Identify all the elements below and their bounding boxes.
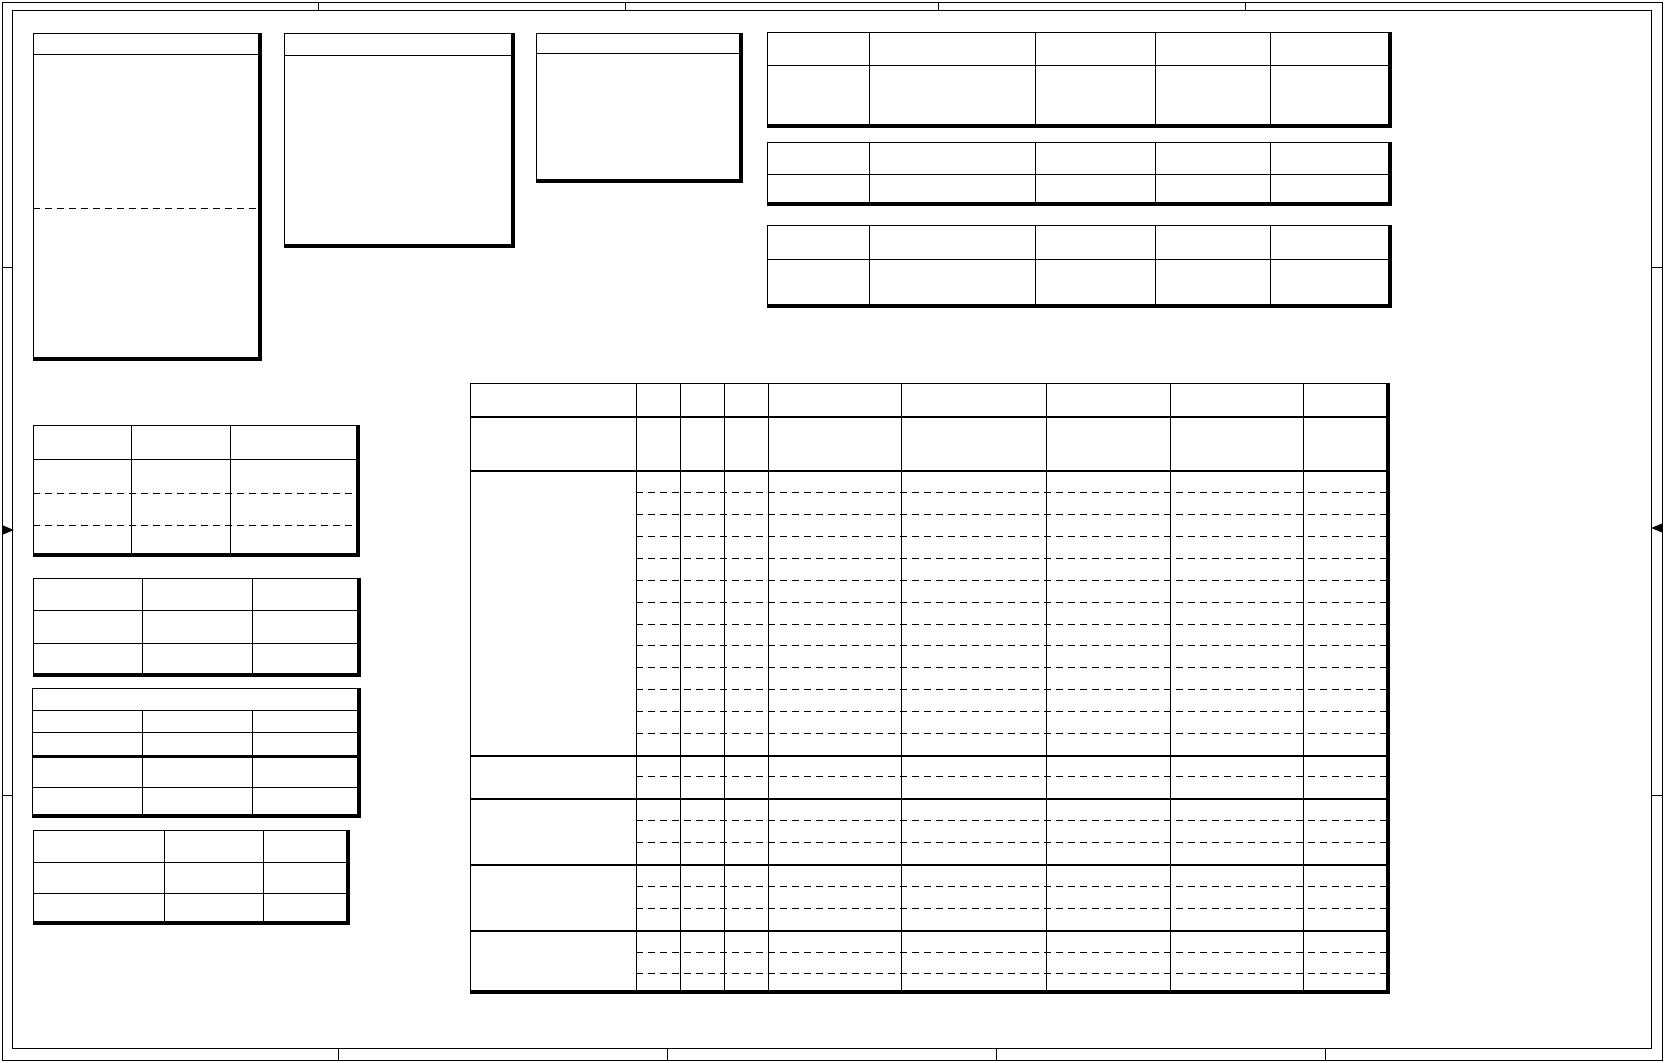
header-table-1-row-rule	[767, 65, 1389, 66]
main-schedule-table-dashed-row-rule	[636, 645, 1387, 646]
frame-zone-tick-top	[938, 2, 939, 10]
side-table-1-row-rule	[33, 459, 357, 460]
side-table-2-col-rule	[142, 578, 143, 674]
main-schedule-table-dashed-row-rule	[636, 667, 1387, 668]
side-table-2-col-rule	[252, 578, 253, 674]
main-schedule-table-dashed-row-rule	[636, 886, 1387, 887]
header-table-2-col-rule	[1270, 142, 1271, 203]
main-schedule-table-header-rule	[470, 416, 1387, 418]
main-schedule-table-col-rule	[724, 383, 725, 991]
header-table-1-col-rule	[1270, 32, 1271, 125]
header-table-3-col-rule	[869, 225, 870, 305]
header-table-3-row-rule	[767, 259, 1389, 260]
frame-zone-tick-bottom	[1325, 1049, 1326, 1061]
main-schedule-table-dashed-row-rule	[636, 580, 1387, 581]
side-table-2	[33, 578, 361, 677]
side-table-1-col-rule	[131, 425, 132, 554]
main-schedule-table-section-rule	[470, 864, 1387, 866]
note-box-2	[284, 33, 515, 248]
frame-zone-tick-left	[2, 795, 12, 796]
main-schedule-table-dashed-row-rule	[636, 776, 1387, 777]
main-schedule-table-dashed-row-rule	[636, 536, 1387, 537]
frame-zone-tick-right	[1652, 795, 1663, 796]
main-schedule-table-dashed-row-rule	[636, 908, 1387, 909]
main-schedule-table-dashed-row-rule	[636, 492, 1387, 493]
frame-zone-tick-top	[1245, 2, 1246, 10]
header-table-3-col-rule	[1155, 225, 1156, 305]
header-table-2-col-rule	[1155, 142, 1156, 203]
note-box-1	[33, 33, 262, 361]
side-table-1-row-rule	[33, 525, 357, 526]
side-table-1-col-rule	[230, 425, 231, 554]
header-table-2-col-rule	[869, 142, 870, 203]
side-table-3-row-rule	[32, 732, 358, 733]
frame-zone-tick-top	[625, 2, 626, 10]
frame-zone-tick-right	[1652, 267, 1663, 268]
header-table-1	[767, 32, 1392, 128]
main-schedule-table-col-rule	[1046, 383, 1047, 991]
side-table-1-row-rule	[33, 493, 357, 494]
side-table-3-row-rule	[32, 755, 358, 758]
main-schedule-table-section-rule	[470, 755, 1387, 757]
header-table-2-row-rule	[767, 174, 1389, 175]
header-table-1-col-rule	[1035, 32, 1036, 125]
note-box-1-header-rule	[33, 54, 259, 55]
frame-center-arrow-left	[2, 525, 14, 535]
main-schedule-table-col-rule	[901, 383, 902, 991]
frame-zone-tick-top	[318, 2, 319, 10]
main-schedule-table-section-rule	[470, 798, 1387, 800]
frame-zone-tick-bottom	[996, 1049, 997, 1061]
frame-center-arrow-right	[1651, 523, 1663, 533]
note-box-1-dashed-rule	[33, 208, 259, 209]
main-schedule-table-dashed-row-rule	[636, 514, 1387, 515]
frame-zone-tick-bottom	[667, 1049, 668, 1061]
note-box-3	[536, 33, 743, 183]
side-table-1	[33, 425, 360, 557]
side-table-4-row-rule	[33, 862, 347, 863]
main-schedule-table-col-rule	[768, 383, 769, 991]
header-table-2-col-rule	[1035, 142, 1036, 203]
main-schedule-table-col-rule	[636, 383, 637, 991]
note-box-2-header-rule	[284, 55, 512, 56]
main-schedule-table-section-rule	[470, 470, 1387, 472]
main-schedule-table-col-rule	[680, 383, 681, 991]
main-schedule-table-dashed-row-rule	[636, 733, 1387, 734]
main-schedule-table-dashed-row-rule	[636, 602, 1387, 603]
main-schedule-table-dashed-row-rule	[636, 711, 1387, 712]
side-table-2-row-rule	[33, 643, 358, 644]
main-schedule-table-col-rule	[1170, 383, 1171, 991]
side-table-4-col-rule	[263, 830, 264, 922]
side-table-3-row-rule	[32, 710, 358, 711]
main-schedule-table-dashed-row-rule	[636, 820, 1387, 821]
main-schedule-table-dashed-row-rule	[636, 973, 1387, 974]
main-schedule-table-dashed-row-rule	[636, 624, 1387, 625]
drawing-sheet	[0, 0, 1665, 1063]
side-table-2-row-rule	[33, 610, 358, 611]
main-schedule-table-section-rule	[470, 930, 1387, 932]
frame-zone-tick-bottom	[338, 1049, 339, 1061]
frame-zone-tick-left	[2, 267, 12, 268]
side-table-4-col-rule	[164, 830, 165, 922]
side-table-4	[33, 830, 350, 925]
main-schedule-table-col-rule	[1303, 383, 1304, 991]
header-table-1-col-rule	[1155, 32, 1156, 125]
main-schedule-table-dashed-row-rule	[636, 689, 1387, 690]
side-table-3-col-rule	[142, 710, 143, 815]
note-box-3-header-rule	[536, 53, 740, 54]
side-table-3-row-rule	[32, 787, 358, 788]
side-table-3	[32, 688, 361, 818]
header-table-3-col-rule	[1035, 225, 1036, 305]
main-schedule-table-dashed-row-rule	[636, 952, 1387, 953]
header-table-1-col-rule	[869, 32, 870, 125]
header-table-3	[767, 225, 1392, 308]
main-schedule-table-dashed-row-rule	[636, 558, 1387, 559]
header-table-3-col-rule	[1270, 225, 1271, 305]
side-table-3-col-rule	[252, 710, 253, 815]
side-table-4-row-rule	[33, 893, 347, 894]
main-schedule-table-dashed-row-rule	[636, 842, 1387, 843]
